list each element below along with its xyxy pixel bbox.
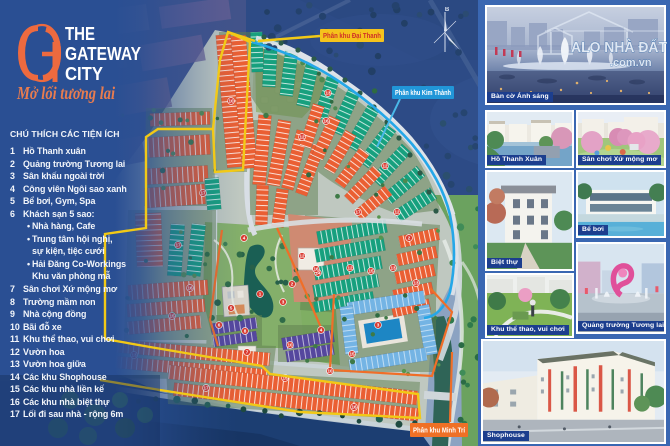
- svg-text:Mở lối tương lai: Mở lối tương lai: [16, 83, 115, 103]
- svg-text:CITY: CITY: [65, 64, 103, 84]
- svg-text:GATEWAY: GATEWAY: [65, 44, 141, 64]
- svg-text:ALO NHÀ ĐẤT: ALO NHÀ ĐẤT: [571, 39, 667, 56]
- svg-text:.com.vn: .com.vn: [610, 57, 652, 69]
- svg-text:THE: THE: [65, 24, 95, 44]
